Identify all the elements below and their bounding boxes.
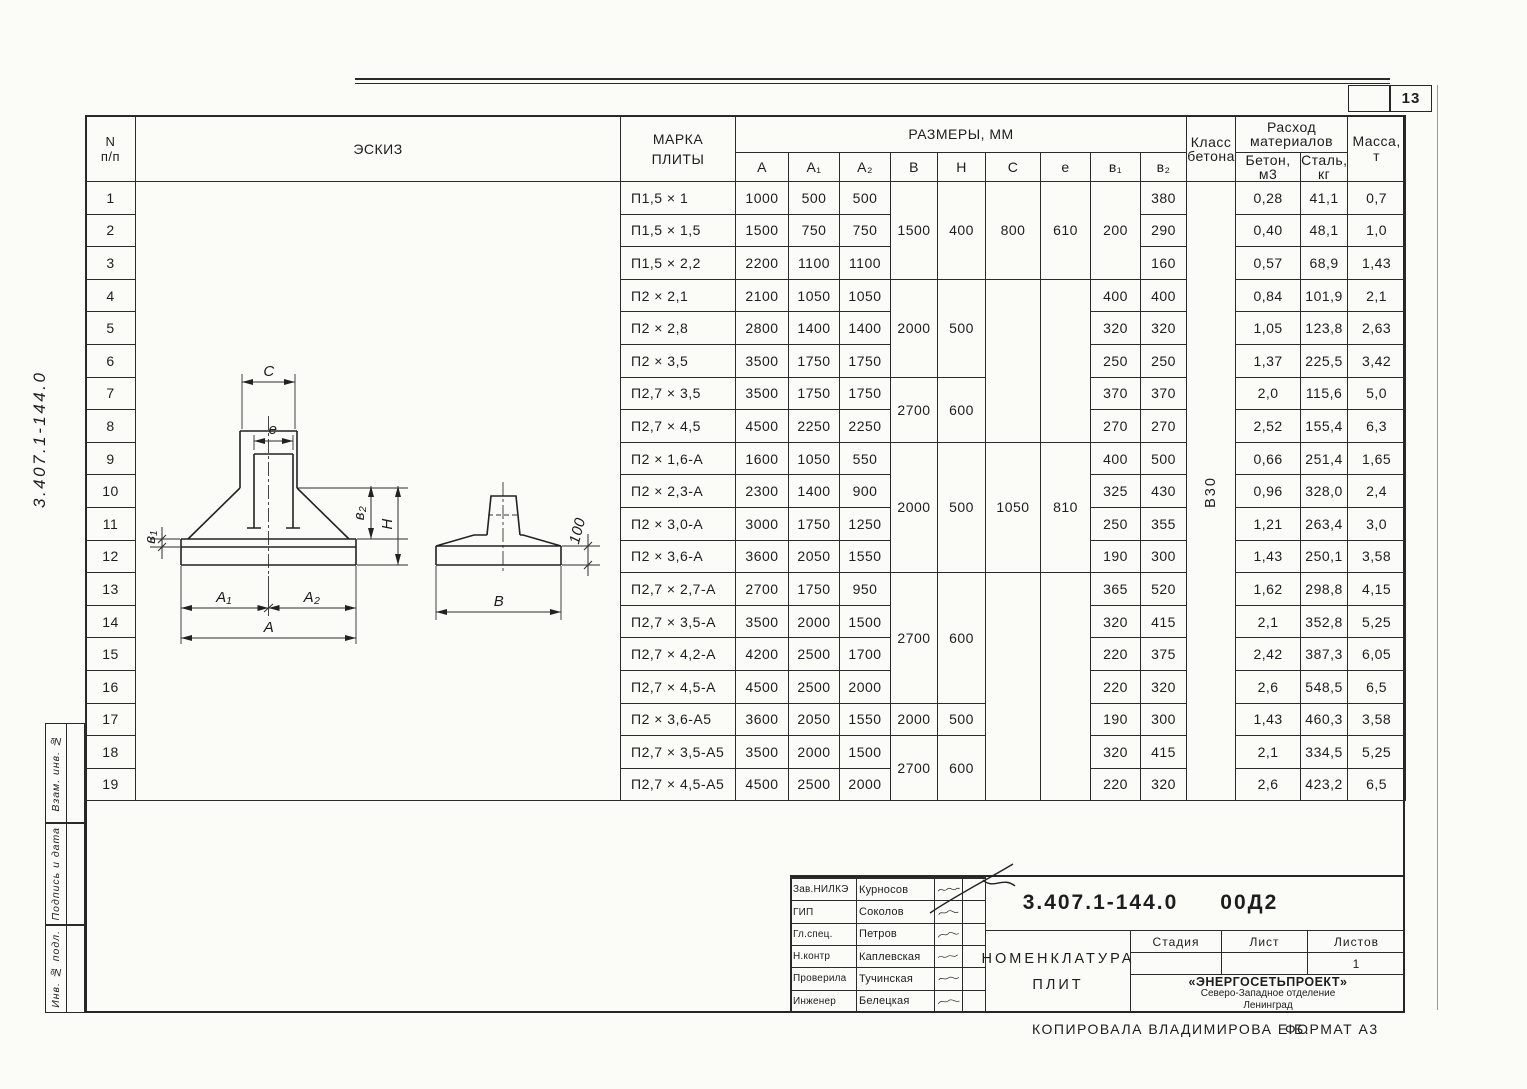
cell-b2: 520 — [1141, 573, 1187, 606]
cell-a2: 1250 — [840, 507, 891, 540]
cell-a: 3600 — [736, 540, 789, 573]
cell-concrete: 0,28 — [1236, 182, 1301, 215]
cell-b2: 320 — [1141, 312, 1187, 345]
cell-steel: 115,6 — [1301, 377, 1348, 410]
cell-h-group: 600 — [938, 377, 986, 442]
cell-n: 13 — [86, 573, 136, 606]
cell-concrete: 1,43 — [1236, 540, 1301, 573]
cell-mark: П1,5 × 1 — [621, 182, 736, 215]
cell-a2: 1550 — [840, 540, 891, 573]
header-materials: Расход материалов — [1236, 116, 1348, 153]
cell-mass: 2,4 — [1348, 475, 1406, 508]
cell-a2: 750 — [840, 214, 891, 247]
cell-c-group: 1050 — [986, 442, 1041, 572]
cell-mark: П2 × 2,1 — [621, 279, 736, 312]
cell-a: 3500 — [736, 605, 789, 638]
cell-a: 1500 — [736, 214, 789, 247]
cell-a2: 2000 — [840, 768, 891, 801]
org-branch: Северо-Западное отделение — [1201, 988, 1336, 1000]
header-col-b1: в₁ — [1091, 153, 1141, 182]
cell-steel: 334,5 — [1301, 736, 1348, 769]
signer-name: Курносов — [857, 879, 935, 901]
side-view-outline — [436, 496, 561, 565]
cell-h-group: 600 — [938, 736, 986, 801]
cell-n: 5 — [86, 312, 136, 345]
sheet-right-edge — [1437, 85, 1438, 1010]
signer-role: Инженер — [791, 990, 857, 1012]
cell-mass: 0,7 — [1348, 182, 1406, 215]
format-note: ФОРМАТ А3 — [1285, 1021, 1379, 1037]
doc-title-line2: ПЛИТ — [1032, 977, 1083, 993]
cell-n: 14 — [86, 605, 136, 638]
cell-mark: П2 × 2,3-А — [621, 475, 736, 508]
cell-b2: 250 — [1141, 344, 1187, 377]
plate-sketch: C e в₁ в₂ H A₁ A₂ A B 100 — [136, 182, 619, 800]
cell-b1: 320 — [1091, 736, 1141, 769]
cell-b2: 320 — [1141, 768, 1187, 801]
cell-steel: 263,4 — [1301, 507, 1348, 540]
cell-mark: П2,7 × 4,5-А — [621, 670, 736, 703]
header-col-c: C — [986, 153, 1041, 182]
header-col-a1: A₁ — [789, 153, 840, 182]
margin-box-inv: Инв. № подл. — [45, 925, 85, 1013]
cell-mark: П2 × 2,8 — [621, 312, 736, 345]
cell-c-empty — [986, 279, 1041, 442]
cell-concrete: 2,1 — [1236, 736, 1301, 769]
signer-role: Проверила — [791, 968, 857, 990]
cell-steel: 123,8 — [1301, 312, 1348, 345]
cell-mass: 5,25 — [1348, 736, 1406, 769]
cell-a2: 550 — [840, 442, 891, 475]
dim-label-b2: в₂ — [351, 506, 368, 521]
cell-n: 19 — [86, 768, 136, 801]
dim-label-b1: в₁ — [142, 530, 159, 544]
cell-concrete: 1,37 — [1236, 344, 1301, 377]
cell-steel: 155,4 — [1301, 410, 1348, 443]
cell-mark: П2 × 3,6-А — [621, 540, 736, 573]
cell-a1: 750 — [789, 214, 840, 247]
cell-b1: 320 — [1091, 312, 1141, 345]
cell-a1: 1050 — [789, 279, 840, 312]
cell-n: 4 — [86, 279, 136, 312]
cell-c-empty — [986, 573, 1041, 801]
cell-b2: 320 — [1141, 670, 1187, 703]
sheet-number-box-empty — [1348, 85, 1390, 112]
header-sketch: ЭСКИЗ — [136, 116, 621, 182]
header-concrete: Бетон, м3 — [1236, 153, 1301, 182]
signature — [935, 901, 963, 923]
cell-a: 4500 — [736, 410, 789, 443]
cell-a1: 500 — [789, 182, 840, 215]
signer-name: Каплевская — [857, 946, 935, 968]
cell-mark: П2,7 × 4,5 — [621, 410, 736, 443]
cell-concrete: 0,57 — [1236, 247, 1301, 280]
signer-role: Зав.НИЛКЭ — [791, 879, 857, 901]
cell-b2: 290 — [1141, 214, 1187, 247]
signature — [935, 879, 963, 901]
cell-a1: 2500 — [789, 638, 840, 671]
cell-a2: 1500 — [840, 736, 891, 769]
signature — [935, 990, 963, 1012]
sheet-number-box: 13 — [1390, 85, 1432, 112]
cell-b2: 355 — [1141, 507, 1187, 540]
dim-line-b1-small — [158, 527, 166, 559]
table-row: 1 — [86, 182, 1406, 215]
dim-label-a: A — [263, 619, 275, 636]
cell-a: 4200 — [736, 638, 789, 671]
organization-cell: «ЭНЕРГОСЕТЬПРОЕКТ» Северо-Западное отдел… — [1130, 975, 1405, 1013]
empty-cell — [963, 923, 986, 945]
cell-b2: 380 — [1141, 182, 1187, 215]
margin-doc-number: 3.407.1-144.0 — [30, 371, 50, 508]
signature — [935, 946, 963, 968]
cell-n: 7 — [86, 377, 136, 410]
cell-a2: 1400 — [840, 312, 891, 345]
cell-concrete: 0,40 — [1236, 214, 1301, 247]
cell-mass: 2,1 — [1348, 279, 1406, 312]
divider — [66, 926, 67, 1012]
cell-n: 12 — [86, 540, 136, 573]
cell-b1: 220 — [1091, 768, 1141, 801]
cell-mass: 3,0 — [1348, 507, 1406, 540]
cell-a2: 1100 — [840, 247, 891, 280]
cell-mass: 3,58 — [1348, 540, 1406, 573]
dim-label-b: B — [494, 593, 505, 610]
margin-box-podpis: Подпись и дата — [45, 823, 85, 925]
sheets-label-cell: Листов — [1308, 931, 1405, 953]
cell-concrete: 0,84 — [1236, 279, 1301, 312]
header-mass: Масса, т — [1348, 116, 1406, 182]
cell-b1: 220 — [1091, 638, 1141, 671]
sheet-number: 13 — [1402, 90, 1421, 107]
cell-a: 3500 — [736, 377, 789, 410]
signature-row: Гл.спец. Петров — [791, 923, 986, 945]
cell-mark: П2 × 3,5 — [621, 344, 736, 377]
signer-role: Гл.спец. — [791, 923, 857, 945]
header-dimensions: РАЗМЕРЫ, ММ — [736, 116, 1187, 153]
cell-b1: 400 — [1091, 442, 1141, 475]
margin-label-vzam: Взам. инв. № — [50, 734, 62, 812]
cell-concrete: 2,6 — [1236, 768, 1301, 801]
cell-concrete-class: В30 — [1187, 182, 1236, 801]
cell-a2: 2250 — [840, 410, 891, 443]
cell-a2: 1500 — [840, 605, 891, 638]
cell-steel: 387,3 — [1301, 638, 1348, 671]
cell-a: 2700 — [736, 573, 789, 606]
cell-b1: 250 — [1091, 507, 1141, 540]
cell-n: 15 — [86, 638, 136, 671]
cell-steel: 101,9 — [1301, 279, 1348, 312]
cell-mark: П2,7 × 4,5-А5 — [621, 768, 736, 801]
cell-b1: 400 — [1091, 279, 1141, 312]
cell-h: 500 — [938, 703, 986, 736]
cell-b1: 370 — [1091, 377, 1141, 410]
signer-name: Белецкая — [857, 990, 935, 1012]
cell-a2: 1700 — [840, 638, 891, 671]
cell-h-group: 500 — [938, 279, 986, 377]
cell-mass: 4,15 — [1348, 573, 1406, 606]
header-mark-line2: ПЛИТЫ — [621, 149, 735, 169]
cell-n: 17 — [86, 703, 136, 736]
cell-mark: П1,5 × 1,5 — [621, 214, 736, 247]
cell-n: 2 — [86, 214, 136, 247]
copied-by-note: КОПИРОВАЛА ВЛАДИМИРОВА Е.Б. — [1032, 1021, 1310, 1037]
cell-b-group: 2000 — [891, 442, 938, 572]
cell-a1: 1400 — [789, 312, 840, 345]
cell-b1-group: 200 — [1091, 182, 1141, 280]
cell-steel: 48,1 — [1301, 214, 1348, 247]
empty-cell — [963, 901, 986, 923]
stage-label-cell: Стадия — [1130, 931, 1222, 953]
cell-a1: 2050 — [789, 540, 840, 573]
cell-b1: 190 — [1091, 703, 1141, 736]
cell-b2: 500 — [1141, 442, 1187, 475]
cell-b2: 300 — [1141, 540, 1187, 573]
dim-label-a1: A₁ — [215, 589, 232, 606]
signature — [935, 923, 963, 945]
cell-e-empty — [1041, 573, 1091, 801]
cell-steel: 225,5 — [1301, 344, 1348, 377]
cell-a1: 2250 — [789, 410, 840, 443]
margin-box-vzam: Взам. инв. № — [45, 723, 85, 823]
cell-a: 3500 — [736, 736, 789, 769]
cell-mass: 6,05 — [1348, 638, 1406, 671]
signer-name: Тучинская — [857, 968, 935, 990]
cell-n: 6 — [86, 344, 136, 377]
cell-b-group: 2700 — [891, 573, 938, 703]
doc-number-cell: 3.407.1-144.0 00Д2 — [985, 875, 1405, 931]
cell-concrete: 1,05 — [1236, 312, 1301, 345]
org-city: Ленинград — [1243, 1000, 1292, 1012]
cell-a1: 2050 — [789, 703, 840, 736]
cell-a1: 1050 — [789, 442, 840, 475]
cell-a2: 1750 — [840, 344, 891, 377]
cell-steel: 548,5 — [1301, 670, 1348, 703]
cell-h-group: 600 — [938, 573, 986, 703]
header-steel: Сталь, кг — [1301, 153, 1348, 182]
cell-n: 1 — [86, 182, 136, 215]
header-mark-line1: МАРКА — [621, 129, 735, 149]
cell-mass: 6,3 — [1348, 410, 1406, 443]
cell-a: 2100 — [736, 279, 789, 312]
cell-a: 4500 — [736, 768, 789, 801]
cell-a1: 1750 — [789, 573, 840, 606]
header-num: N п/п — [86, 116, 136, 182]
signature-row: ГИП Соколов — [791, 901, 986, 923]
cell-b2: 375 — [1141, 638, 1187, 671]
cell-a2: 900 — [840, 475, 891, 508]
cell-e-group: 810 — [1041, 442, 1091, 572]
cell-steel: 328,0 — [1301, 475, 1348, 508]
cell-concrete: 2,42 — [1236, 638, 1301, 671]
cell-b1: 270 — [1091, 410, 1141, 443]
cell-a1: 2500 — [789, 670, 840, 703]
header-col-h: H — [938, 153, 986, 182]
dim-line-lip — [584, 534, 592, 576]
header-num-sublabel: п/п — [86, 149, 135, 164]
cell-b2: 415 — [1141, 605, 1187, 638]
cell-c-group: 800 — [986, 182, 1041, 280]
cell-n: 18 — [86, 736, 136, 769]
doc-suffix: 00Д2 — [1220, 891, 1278, 915]
cell-mark: П2 × 3,0-А — [621, 507, 736, 540]
divider — [66, 724, 67, 822]
cell-mass: 3,58 — [1348, 703, 1406, 736]
cell-n: 10 — [86, 475, 136, 508]
margin-label-podpis: Подпись и дата — [50, 827, 62, 920]
dim-label-lip: 100 — [566, 516, 589, 546]
cell-n: 8 — [86, 410, 136, 443]
cell-a1: 1400 — [789, 475, 840, 508]
cell-a1: 1750 — [789, 377, 840, 410]
cell-concrete: 2,0 — [1236, 377, 1301, 410]
cell-b2: 370 — [1141, 377, 1187, 410]
cell-steel: 250,1 — [1301, 540, 1348, 573]
cell-b1: 190 — [1091, 540, 1141, 573]
empty-cell — [963, 968, 986, 990]
signer-role: Н.контр — [791, 946, 857, 968]
org-name: «ЭНЕРГОСЕТЬПРОЕКТ» — [1189, 976, 1348, 988]
cell-a: 2300 — [736, 475, 789, 508]
header-col-a: A — [736, 153, 789, 182]
cell-mass: 1,0 — [1348, 214, 1406, 247]
doc-number: 3.407.1-144.0 — [1023, 891, 1179, 915]
signer-name: Петров — [857, 923, 935, 945]
cell-b1: 365 — [1091, 573, 1141, 606]
cell-n: 9 — [86, 442, 136, 475]
cell-a2: 950 — [840, 573, 891, 606]
signature-row: Зав.НИЛКЭ Курносов — [791, 879, 986, 901]
cell-mark: П2,7 × 4,2-А — [621, 638, 736, 671]
sketch-cell: C e в₁ в₂ H A₁ A₂ A B 100 — [136, 182, 621, 801]
cell-steel: 68,9 — [1301, 247, 1348, 280]
top-border-rule — [355, 78, 1390, 80]
cell-mass: 1,43 — [1348, 247, 1406, 280]
sheets-value-cell: 1 — [1308, 953, 1405, 975]
header-row-1: N п/п ЭСКИЗ МАРКА ПЛИТЫ РАЗМЕРЫ, ММ Клас… — [86, 116, 1406, 153]
cell-mark: П1,5 × 2,2 — [621, 247, 736, 280]
signature-row: Проверила Тучинская — [791, 968, 986, 990]
cell-a: 3500 — [736, 344, 789, 377]
cell-n: 3 — [86, 247, 136, 280]
cell-concrete: 1,21 — [1236, 507, 1301, 540]
signature-table: Зав.НИЛКЭ Курносов ГИП Соколов Гл.спец. … — [790, 875, 986, 1013]
cell-mark: П2 × 3,6-А5 — [621, 703, 736, 736]
cell-a: 2800 — [736, 312, 789, 345]
cell-b2: 270 — [1141, 410, 1187, 443]
cell-steel: 423,2 — [1301, 768, 1348, 801]
header-mark: МАРКА ПЛИТЫ — [621, 116, 736, 182]
header-col-b2: в₂ — [1141, 153, 1187, 182]
header-concrete-class: Класс бетона — [1187, 116, 1236, 182]
dim-label-e: e — [269, 421, 278, 438]
cell-mark: П2,7 × 3,5-А5 — [621, 736, 736, 769]
cell-concrete: 2,6 — [1236, 670, 1301, 703]
cell-a1: 2500 — [789, 768, 840, 801]
cell-mass: 2,63 — [1348, 312, 1406, 345]
cell-h-group: 500 — [938, 442, 986, 572]
cell-a2: 500 — [840, 182, 891, 215]
cell-b1: 220 — [1091, 670, 1141, 703]
cell-concrete: 0,66 — [1236, 442, 1301, 475]
signature — [935, 968, 963, 990]
sheet-label-cell: Лист — [1222, 931, 1308, 953]
cell-mass: 5,25 — [1348, 605, 1406, 638]
cell-mass: 6,5 — [1348, 670, 1406, 703]
header-col-a2: A₂ — [840, 153, 891, 182]
top-border-rule-2 — [355, 83, 1390, 84]
cell-concrete: 2,1 — [1236, 605, 1301, 638]
cell-concrete: 0,96 — [1236, 475, 1301, 508]
cell-a1: 2000 — [789, 605, 840, 638]
cell-b-group: 1500 — [891, 182, 938, 280]
header-col-b: B — [891, 153, 938, 182]
cell-b1: 250 — [1091, 344, 1141, 377]
doc-title: НОМЕНКЛАТУРА ПЛИТ — [985, 931, 1130, 1013]
cell-mass: 5,0 — [1348, 377, 1406, 410]
cell-b2: 300 — [1141, 703, 1187, 736]
cell-mass: 6,5 — [1348, 768, 1406, 801]
cell-steel: 460,3 — [1301, 703, 1348, 736]
cell-a2: 1750 — [840, 377, 891, 410]
cell-a1: 1100 — [789, 247, 840, 280]
cell-mark: П2,7 × 2,7-А — [621, 573, 736, 606]
cell-b1: 325 — [1091, 475, 1141, 508]
cell-b1: 320 — [1091, 605, 1141, 638]
cell-b-group: 2700 — [891, 377, 938, 442]
dim-label-a2: A₂ — [303, 589, 321, 606]
header-num-label: N — [86, 134, 135, 149]
cell-n: 11 — [86, 507, 136, 540]
header-col-e: e — [1041, 153, 1091, 182]
cell-steel: 251,4 — [1301, 442, 1348, 475]
cell-n: 16 — [86, 670, 136, 703]
doc-title-line1: НОМЕНКЛАТУРА — [982, 951, 1135, 967]
cell-e-group: 610 — [1041, 182, 1091, 280]
cell-mark: П2,7 × 3,5 — [621, 377, 736, 410]
signature-row: Н.контр Каплевская — [791, 946, 986, 968]
cell-b-group: 2700 — [891, 736, 938, 801]
cell-concrete: 2,52 — [1236, 410, 1301, 443]
sheet-value-cell — [1222, 953, 1308, 975]
cell-a: 3000 — [736, 507, 789, 540]
cell-a2: 1050 — [840, 279, 891, 312]
cell-a2: 1550 — [840, 703, 891, 736]
concrete-class-value: В30 — [1203, 476, 1219, 508]
nomenclature-table: N п/п ЭСКИЗ МАРКА ПЛИТЫ РАЗМЕРЫ, ММ Клас… — [85, 115, 1406, 801]
cell-h-group: 400 — [938, 182, 986, 280]
cell-b2: 160 — [1141, 247, 1187, 280]
cell-concrete: 1,43 — [1236, 703, 1301, 736]
cell-b2: 415 — [1141, 736, 1187, 769]
cell-b2: 400 — [1141, 279, 1187, 312]
empty-cell — [963, 879, 986, 901]
cell-mark: П2,7 × 3,5-А — [621, 605, 736, 638]
cell-a: 1000 — [736, 182, 789, 215]
cell-steel: 298,8 — [1301, 573, 1348, 606]
dim-label-h: H — [379, 518, 396, 529]
cell-a1: 1750 — [789, 344, 840, 377]
cell-mass: 3,42 — [1348, 344, 1406, 377]
cell-a: 3600 — [736, 703, 789, 736]
dim-label-c: C — [263, 363, 274, 380]
cell-mark: П2 × 1,6-А — [621, 442, 736, 475]
cell-mass: 1,65 — [1348, 442, 1406, 475]
cell-e-empty — [1041, 279, 1091, 442]
cell-b: 2000 — [891, 703, 938, 736]
stage-value-cell — [1130, 953, 1222, 975]
signer-role: ГИП — [791, 901, 857, 923]
